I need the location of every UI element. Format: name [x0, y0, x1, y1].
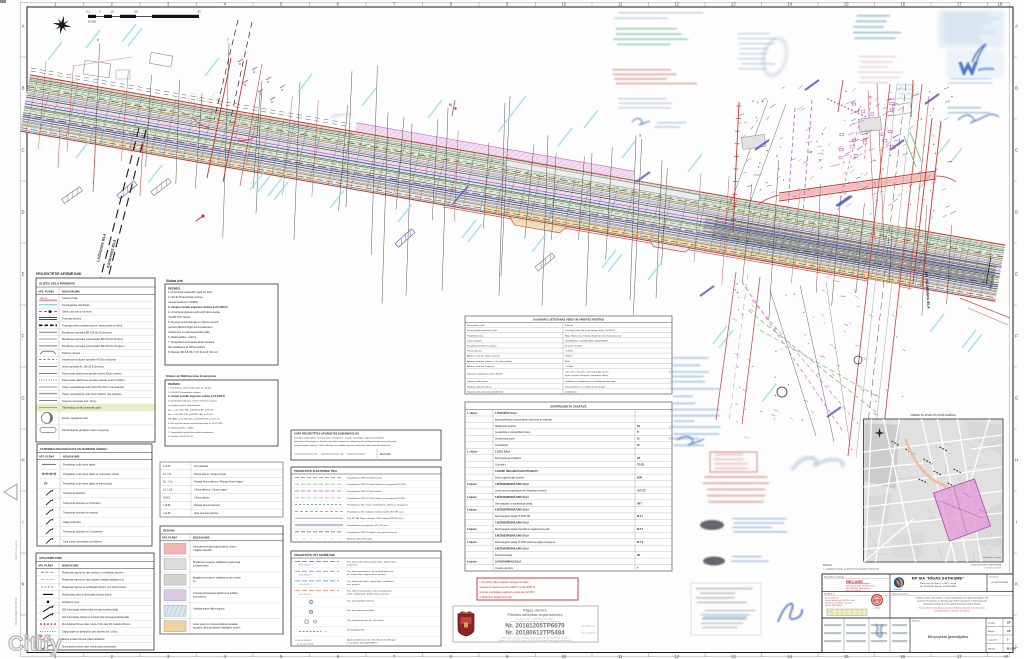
svg-text:04.03.2020 10:18:14: 04.03.2020 10:18:14	[14, 597, 18, 625]
svg-text:"GLIAB" RTK metode.: "GLIAB" RTK metode.	[168, 316, 191, 319]
svg-text:Gājēju barjera ar aizsardzību: Gājēju barjera ar aizsardzību pret kāpnē…	[62, 631, 118, 634]
svg-text:Būvniecības veids: Būvniecības veids	[467, 324, 486, 327]
svg-text:F: F	[22, 334, 25, 339]
svg-text:m): m)	[193, 581, 196, 583]
svg-text:Atbalstiena zona: Atbalstiena zona	[62, 601, 80, 604]
svg-text:14: 14	[787, 1, 792, 6]
svg-text:3.DARBU ORGANIZĀCIJAS PROJEKTS: 3.DARBU ORGANIZĀCIJAS PROJEKTS	[495, 470, 538, 473]
svg-text:Pārejas līknes sākums / Pāreja: Pārejas līknes sākums / Pārejas līknes b…	[194, 481, 243, 484]
svg-text:01000620027, 01000810005, 0100: 01000620027, 01000810005, 01000610099	[565, 340, 608, 342]
svg-text:A: A	[1015, 24, 1018, 29]
svg-text:K: K	[1015, 582, 1018, 587]
svg-text:Gājēju luksofors: Gājēju luksofors	[63, 521, 82, 524]
svg-text:OBJEKTA IZVIETOJUMA SHĒMA: OBJEKTA IZVIETOJUMA SHĒMA	[971, 564, 1002, 567]
svg-text:SEGUMI: SEGUMI	[163, 529, 175, 533]
svg-text:Līknes sākums / Līknes beigas: Līknes sākums / Līknes beigas	[194, 489, 227, 492]
svg-text:6.sējums: 6.sējums	[467, 529, 478, 531]
svg-text:Būvprojektēšanai nepieciešamie: Būvprojektēšanai nepieciešamie dokumenti…	[495, 418, 552, 421]
svg-text:4.sējums: 4.sējums	[467, 496, 478, 499]
svg-text:B: B	[1015, 86, 1018, 91]
svg-text:Pietuvnotas platformas apmales: Pietuvnotas platformas apmales pārejas p…	[62, 378, 125, 382]
svg-text:16: 16	[900, 1, 905, 6]
svg-text:Projektētās ielas: Projektētās ielas	[467, 334, 484, 337]
svg-text:12: 12	[674, 1, 679, 6]
svg-text:(ieskaitot krustojumu) zemes g: (ieskaitot krustojumu) zemes gabals tram…	[923, 603, 981, 606]
svg-text:Kontūrgabala robežlīnija: Kontūrgabala robežlīnija	[62, 303, 90, 307]
svg-text:NOSAUKUMS: NOSAUKUMS	[62, 564, 79, 567]
svg-text:Seguma veids ietvām: Seguma veids ietvām	[467, 380, 488, 383]
svg-text:0.1: 0.1	[86, 10, 91, 14]
svg-text:M: M	[449, 103, 452, 107]
svg-text:Kleistu iela 28, Rīga, LV-1067: Kleistu iela 28, Rīga, LV-1067, Latvija	[920, 582, 957, 585]
svg-text:Betona portāla izbūvēta (zāles: Betona portāla izbūvēta (zāles) atbalsti…	[62, 638, 105, 641]
svg-text:Elektrisko tīklu demontāža: Elektrisko tīklu demontāža	[347, 538, 373, 541]
svg-text:1. Uzmērīšana veikta 2018. gad: 1. Uzmērīšana veikta 2018. gada 10. okto…	[168, 386, 212, 389]
svg-text:C: C	[1015, 148, 1018, 153]
svg-text:×: ×	[325, 629, 327, 633]
svg-text:AVS: AVS	[874, 598, 881, 602]
svg-text:Sertifikāts nr.: Sertifikāts nr.	[824, 593, 835, 596]
svg-text:3. Latvijas normālo augstumu s: 3. Latvijas normālo augstumu sistēma (LA…	[168, 395, 225, 398]
svg-text:K: K	[22, 582, 25, 587]
svg-text:ter., ārējais diam., drīguma k: ter., ārējais diam., drīguma klase, garu…	[347, 573, 386, 576]
svg-text:Aitnanšouma olīpāte apmales IN: Aitnanšouma olīpāte apmales IN 50cm (bet…	[62, 358, 116, 362]
svg-text:Projektējamas RPK 97 kabēlis,: Projektējamas RPK 97 kabēlis, aizsargcan…	[347, 531, 397, 534]
svg-text:Elektroapgāde (ārējā) ST RPR t: Elektroapgāde (ārējā) ST RPR tīkli	[495, 515, 531, 518]
svg-text:Reģ.Nr. 4555-R3555: Reģ.Nr. 4555-R3555	[825, 604, 842, 607]
svg-text:ELT-2: ELT-2	[637, 529, 644, 531]
svg-text:I: I	[22, 520, 23, 525]
svg-text:F: F	[1015, 334, 1018, 339]
svg-text:A3: A3	[1004, 655, 1008, 659]
svg-text:Agrāk projektēti uzsk. (km. Ø4: Agrāk projektēti uzsk. (km. Ø4., lēmumi …	[347, 639, 396, 642]
svg-text:LV6 4B37C007/948: LV6 4B37C007/948	[985, 567, 1001, 569]
svg-text:KOPĀ PROJEKTĒTĀS APVIENOTĀS KO: KOPĀ PROJEKTĒTĀS APVIENOTĀS KOMUNIKĀCIJA…	[294, 433, 359, 436]
svg-text:C: C	[21, 148, 24, 153]
svg-text:DOP: DOP	[637, 477, 642, 479]
svg-text:Slokas un Mārtiņa ielas krusto: Slokas un Mārtiņa ielas krustojums	[166, 374, 217, 378]
svg-text:Ietves apmales AL 100.20.8 (be: Ietves apmales AL 100.20.8 (betona)	[62, 365, 104, 369]
svg-text:10.EKONOMIKAS DAĻA: 10.EKONOMIKAS DAĻA	[495, 560, 521, 563]
svg-text:Proj. kanalizācijas akas (m.,: Proj. kanalizācijas akas (m., aku centrs…	[347, 619, 384, 622]
svg-text:3. Latvijas normālo augstumu s: 3. Latvijas normālo augstumu sistēma (LA…	[168, 306, 228, 309]
svg-text:d110 PE-21.3: d110 PE-21.3	[299, 574, 312, 576]
svg-text:ELT-1: ELT-1	[637, 516, 644, 518]
svg-text:Pielaicinātas zāles ar demontā: Pielaicinātas zāles ar demontāžā kolonna…	[62, 594, 112, 597]
svg-text:Skaidrojošs apraksts: Skaidrojošs apraksts	[495, 425, 517, 428]
svg-text:zvērests: zvērests	[874, 607, 881, 610]
svg-text:Apbūves laukums (zāliens, t.sk: Apbūves laukums (zāliens, t.sk. celiņu p…	[467, 360, 512, 363]
svg-text:Demontāžas izbūves zāles novid: Demontāžas izbūves zāles novidu kāpņu pā…	[62, 645, 116, 648]
svg-text:Projektējamas RPK 97 10kV kab: Projektējamas RPK 97 10kV kabelis	[347, 490, 381, 493]
svg-text:mēroga koeficients 0.999805.: mēroga koeficients 0.999805.	[168, 301, 199, 304]
svg-text:Proj. ugunsdzēsības hidrants: Proj. ugunsdzēsības hidrants	[347, 599, 374, 602]
svg-text:Rīga, Slokas iela, Krišjāņa Va: Rīga, Slokas iela, Krišjāņa Valdemāra ie…	[565, 334, 622, 337]
svg-text:Sarkanā līnija: Sarkanā līnija	[62, 296, 78, 300]
svg-text:Projektētas ceļa zīmes balsts: Projektētas ceļa zīmes balsts ar konstru…	[63, 483, 113, 486]
svg-text:13: 13	[731, 1, 736, 6]
svg-text:B: B	[22, 86, 25, 91]
svg-text:17: 17	[957, 654, 962, 659]
svg-text:ĢP: ĢP	[637, 458, 641, 460]
svg-text:I: I	[1016, 520, 1017, 525]
svg-text:Projektējamas RPK 97 10kV kab: Projektējamas RPK 97 10kV kabelis ar aiz…	[347, 497, 405, 500]
svg-text:13: 13	[731, 654, 736, 659]
svg-text:A: A	[22, 24, 25, 29]
svg-text:Sliežu ceļu ass un numurs: Sliežu ceļu ass un numurs	[62, 310, 92, 314]
svg-text:ĢP: ĢP	[1007, 622, 1011, 625]
svg-text:LVL/4DP/2018/48: LVL/4DP/2018/48	[991, 582, 1009, 584]
svg-text:LED informācijas displejs (tik: LED informācijas displejs (tikai tramvaj…	[62, 608, 118, 611]
svg-text:tramvaja projekta krāsiena. Tī: tramvaja projekta krāsiena. Tīklinis. Mē…	[294, 444, 391, 447]
svg-text:SATIKSMES ORGANIZĀCIJAS UN TEH: SATIKSMES ORGANIZĀCIJAS UN TEHNISKIE LĪD…	[40, 447, 108, 451]
svg-text:4.INŽENIERRISINĀJUMU DAĻA: 4.INŽENIERRISINĀJUMU DAĻA	[495, 483, 529, 486]
svg-text:ŪKT: ŪKT	[637, 502, 642, 505]
svg-text:Ģeotehniskā izpēte: Ģeotehniskā izpēte	[495, 438, 515, 441]
svg-text:5.INŽENIERRISINĀJUMU DAĻA: 5.INŽENIERRISINĀJUMU DAĻA	[495, 496, 529, 499]
svg-text:10: 10	[561, 654, 566, 659]
svg-text:LED informācijas displejs ar t: LED informācijas displejs ar tornado (ti…	[62, 616, 129, 619]
svg-text:Elektroapgāde (ārējā) Atsevišķ: Elektroapgāde (ārējā) Atsevišķi un apgai…	[495, 528, 550, 531]
svg-text:85m²: 85m²	[565, 360, 570, 363]
svg-text:Nr. 20180612TP5484: Nr. 20180612TP5484	[505, 630, 565, 637]
svg-text:L+0.00: L+0.00	[163, 465, 171, 468]
svg-text:14: 14	[787, 654, 792, 659]
svg-text:AM. klasifikatora W. 06/11 pra: AM. klasifikatora W. 06/11 prasībām.	[168, 346, 206, 349]
svg-text:RP SIA "RĪGAS SATIKSME": RP SIA "RĪGAS SATIKSME"	[912, 576, 964, 581]
svg-text:2.CEĻU DAĻA: 2.CEĻU DAĻA	[495, 451, 511, 454]
svg-text:Būvprojekta ģenerālplāns: Būvprojekta ģenerālplāns	[495, 457, 522, 460]
svg-text:Nr. 20181205TP6679: Nr. 20181205TP6679	[505, 623, 565, 630]
svg-text:M 500: M 500	[88, 20, 97, 24]
svg-text:15: 15	[844, 1, 849, 6]
svg-text:Projektētās brauktuves ātrums: Projektētās brauktuves ātrums	[467, 345, 497, 348]
svg-text:Būvkonstrukcijas: Būvkonstrukcijas	[495, 554, 513, 557]
svg-text:10.0k 42.31/40.2: 10.0k 42.31/40.2	[295, 640, 312, 642]
svg-text:APZ. PLĀNĀ: APZ. PLĀNĀ	[39, 455, 54, 458]
svg-text:Reģ. Nr. LV40003-: Reģ. Nr. LV40003-	[846, 589, 862, 592]
svg-text:Dat. 04.02 iesn: Dat. 04.02 iesn	[581, 625, 594, 628]
svg-text:Pasūtījuma: Pasūtījuma	[989, 575, 999, 578]
svg-text:5.sējums: 5.sējums	[467, 510, 478, 512]
svg-text:G: G	[21, 396, 24, 401]
svg-text:d110 PE-21.3: d110 PE-21.3	[299, 584, 312, 586]
svg-text:Proj. lietus kanalizācija ar /: Proj. lietus kanalizācija ar / bez aizsa…	[347, 570, 394, 573]
svg-text:Apbūves laukums (kopējais): Apbūves laukums (kopējais)	[467, 365, 495, 368]
svg-text:Piezīme:: Piezīme:	[823, 564, 833, 567]
svg-text:Rokturu rampas: Rokturu rampas	[62, 351, 81, 355]
svg-text:Proj. siltūves kanalizācija ar: Proj. siltūves kanalizācija ar / bez aiz…	[347, 590, 392, 593]
svg-text:1. sējums: 1. sējums	[467, 413, 478, 415]
svg-text:Bruģakmens segums- asfaltbeton: Bruģakmens segums- asfaltbetona (pāra se…	[193, 561, 241, 564]
svg-text:Pilsētas attīstības departamen: Pilsētas attīstības departaments	[508, 613, 563, 617]
svg-text:7368m²: 7368m²	[565, 355, 573, 358]
svg-text:7.INŽENIERRISINĀJUMU DAĻA: 7.INŽENIERRISINĀJUMU DAĻA	[495, 522, 529, 525]
svg-text:Slokas iela: Slokas iela	[166, 279, 183, 283]
svg-text:40: 40	[197, 10, 201, 14]
svg-text:Tramvaja sliežu pārejas posms-: Tramvaja sliežu pārejas posms- saremontē…	[62, 323, 122, 327]
svg-text:8. Pārskats: BK-5.8; BK-7.0.8;: 8. Pārskats: BK-5.8; BK-7.0.8; PL11.10; …	[168, 351, 218, 354]
svg-text:Elektroapgāde (ārējā) ST RPR e: Elektroapgāde (ārējā) ST RPR elektroener…	[495, 541, 556, 544]
svg-text:Projektējamas RPK 97 0-4kV ka: Projektējamas RPK 97 0-4kV kabelis	[347, 476, 382, 479]
svg-text:M 1:500: M 1:500	[1007, 648, 1016, 651]
svg-text:posmā no krustojuma ar Jūrmala: posmā no krustojuma ar Jūrmalas gatvi lī…	[917, 599, 987, 602]
svg-text:Elektrotīkli: Elektrotīkli	[380, 453, 391, 456]
svg-text:15: 15	[844, 654, 849, 659]
svg-text:san.lin.: san.lin.	[40, 297, 48, 300]
svg-text:E: E	[1015, 272, 1018, 277]
svg-text:PIEZĪMES:: PIEZĪMES:	[168, 383, 181, 386]
svg-text:BK: BK	[637, 555, 641, 557]
svg-text:s hontehniskai): s hontehniskai)	[193, 565, 209, 568]
svg-text:N.DK3: N.DK3	[163, 496, 171, 499]
svg-text:Seguma veids pieturvietu platf: Seguma veids pieturvietu platformām	[467, 390, 503, 393]
svg-text:Proj. RP SIA "Rīgas satiksme": Proj. RP SIA "Rīgas satiksme" 0-4kV kabe…	[347, 517, 404, 520]
svg-text:Rīgas domes: Rīgas domes	[523, 609, 547, 613]
svg-text:13. / 16.: 13. / 16.	[163, 473, 172, 476]
svg-text:Ceļa darbi: Ceļa darbi	[495, 464, 506, 467]
svg-text:Projektētas ceļa zīmes balsts: Projektētas ceļa zīmes balsts	[63, 463, 96, 466]
svg-text:tālr. 67020000, Reģ.Nr. 400036: tālr. 67020000, Reģ.Nr. 40003619950	[920, 585, 957, 588]
svg-text:PROJEKTĒTIE ŪKT APZĪMĒJUMI: PROJEKTĒTIE ŪKT APZĪMĒJUMI	[294, 553, 335, 557]
svg-text:Seguma veids brauktuvei: Seguma veids brauktuvei	[467, 385, 492, 388]
svg-text:4. Uzmērīšanā iekļautas LatPos: 4. Uzmērīšanā iekļautas LatPos GP bāzes …	[168, 311, 221, 314]
svg-text:Mērogs bez mēroga: Mērogs bez mēroga	[983, 556, 1002, 559]
svg-text:L+0.38: L+0.38	[163, 512, 171, 515]
svg-text:11: 11	[618, 1, 623, 6]
svg-text:D: D	[1015, 210, 1018, 215]
svg-text:OBJEKTA IZVIETOJUMA SHĒMA: OBJEKTA IZVIETOJUMA SHĒMA	[911, 413, 956, 417]
svg-text:Lapas Nr.: Lapas Nr.	[988, 639, 998, 642]
svg-text:NOSAUKUMS: NOSAUKUMS	[63, 455, 80, 458]
svg-text:Projektējamas RS. strāvas izl: Projektējamas RS. strāvas izlīdzināšanas…	[347, 504, 408, 507]
svg-text:saskaņotā plānus norāsanu krus: saskaņotā plānus norāsanu krustojumā	[934, 610, 971, 613]
svg-text:APGAISMOJUMS: APGAISMOJUMS	[39, 556, 62, 560]
svg-text:NOSAUKUMS: NOSAUKUMS	[62, 289, 80, 293]
svg-text:30 km/h, 50 km/h: 30 km/h, 50 km/h	[565, 346, 583, 348]
svg-text:Bruģakmens segums- asfaltbeton: Bruģakmens segums- asfaltbetona (āxu mai…	[193, 577, 241, 580]
svg-text:Pārbūve: Pārbūve	[565, 324, 574, 327]
svg-text:Demontējamie grupējumi (sarm i: Demontējamie grupējumi (sarm izeguma)	[62, 428, 109, 432]
svg-text:BŪVPROJEKTA SASTĀVS: BŪVPROJEKTA SASTĀVS	[551, 404, 587, 408]
svg-text:Marka: Marka	[988, 630, 995, 633]
svg-text:taisa elementa garums: taisa elementa garums	[194, 512, 219, 515]
svg-text:Proj. lietus kapu būvniecībām: Proj. lietus kapu būvniecībām	[347, 609, 374, 612]
svg-text:betona plāksnes un halbes gran: betona plāksnes un halbes granīta bruģis	[565, 385, 606, 388]
svg-text:7.sējums: 7.sējums	[467, 542, 478, 544]
svg-text:Zemes kadastri: Zemes kadastri	[467, 339, 482, 342]
svg-text:Seguma nomaiņas (mē. ilmiņ): Seguma nomaiņas (mē. ilmiņ)	[62, 399, 96, 403]
svg-text:Pielaicināts izgurms ar zālu n: Pielaicināts izgurms ar zālu novidam un …	[62, 571, 123, 574]
svg-text:8.sējums: 8.sējums	[467, 561, 478, 563]
svg-text:noteikumiem un veikti apsekoša: noteikumiem un veikti apsekošanā dabā.	[168, 331, 210, 334]
svg-text:RECARE: RECARE	[846, 579, 863, 584]
svg-text:Par pikraksta: Par pikraksta	[194, 465, 209, 468]
svg-text:PIEZĪMES:: PIEZĪMES:	[168, 287, 181, 291]
svg-text:Tilpnveidīgo smilšu izmērošā g: Tilpnveidīgo smilšu izmērošā gads	[62, 406, 102, 410]
svg-text:asfaltbetons: asfaltbetons	[565, 390, 578, 393]
svg-text:5. Ielu seguma izbūves marka (: 5. Ielu seguma izbūves marka (kārta dati…	[168, 422, 224, 425]
svg-text:Demontējamie tīkli: Demontējamie tīkli	[347, 629, 365, 632]
svg-text:Rasējums: Rasējums	[912, 620, 920, 623]
svg-text:d110 PE-21.3: d110 PE-21.3	[299, 594, 312, 596]
svg-text:Fotofiksācija: Fotofiksācija	[495, 444, 508, 447]
svg-text:ējumi, seguma krāsojumi, (aizs: ējumi, seguma krāsojumi, (aizsardzes dat…	[565, 374, 609, 377]
svg-text:DL. 1 Vd.: DL. 1 Vd.	[163, 481, 173, 484]
svg-text:7. Topogrāfiskā apzīmēšana atb: 7. Topogrāfiskā apzīmēšana atbilst stand…	[168, 431, 213, 434]
svg-text:un veiktais uzmēra aktualizēša: un veiktais uzmēra aktualizēšana:	[168, 404, 201, 407]
svg-text:18: 18	[998, 1, 1003, 6]
svg-text:APZ. PLĀNĀ: APZ. PLĀNĀ	[38, 289, 54, 293]
svg-text:Plānais garums: Plānais garums	[467, 350, 483, 353]
svg-text:Mērogs: Mērogs	[988, 648, 996, 651]
svg-text:6.INŽENIERRISINĀJUMU DAĻA: 6.INŽENIERRISINĀJUMU DAĻA	[495, 509, 529, 512]
svg-text:9.INŽENIERRISINĀJUMU DAĻA: 9.INŽENIERRISINĀJUMU DAĻA	[495, 548, 529, 551]
svg-text:10: 10	[561, 1, 566, 6]
svg-text:Projektējamas RPK 97 0-4kV ka: Projektējamas RPK 97 0-4kV kabelis ar ai…	[347, 483, 406, 486]
svg-text:3.kārta. Sliežu ceļa pārbūve p: 3.kārta. Sliežu ceļa pārbūve posmā no Mā…	[919, 607, 986, 610]
svg-text:kan - u+zt 5800 DIG; p-5649/14: kan - u+zt 5800 DIG; p-5649/14; AP; m+12…	[168, 413, 213, 416]
svg-text:Pietuvnotas platformas apmale: Pietuvnotas platformas apmale (izsēts 50…	[62, 371, 122, 375]
svg-text:mater., ārējais diam., drīguma: mater., ārējais diam., drīguma klase, ga…	[347, 593, 389, 596]
svg-text:Apbūves laukums (slāņa augsne): Apbūves laukums (slāņa augsne)	[467, 355, 500, 358]
svg-text:SA: SA	[637, 425, 641, 428]
svg-text:12: 12	[674, 654, 679, 659]
svg-text:Brauktuves apmales pazeminātas: Brauktuves apmales pazeminātas BR 100.22…	[62, 337, 123, 341]
svg-text:e, garums): e, garums)	[347, 563, 357, 566]
svg-text:Līknes rādiuss: Līknes rādiuss	[194, 496, 210, 499]
svg-text:Projektējamas RU. kabeļraru va: Projektējamas RU. kabeļraru vadītais kab…	[347, 510, 404, 513]
svg-text:E: E	[22, 272, 25, 277]
svg-text:H: H	[1015, 458, 1018, 463]
svg-text:ĢI: ĢI	[637, 439, 640, 441]
svg-text:Dat. 18.2003 iesn: Dat. 18.2003 iesn	[581, 632, 597, 635]
svg-text:Tramvaja piebraucamā platforma: Tramvaja piebraucamā platforma ar asfalt…	[193, 592, 239, 595]
svg-text:ELT-3: ELT-3	[637, 542, 644, 544]
svg-text:PROJEKTĒTIE APZĪMĒJUMI: PROJEKTĒTIE APZĪMĒJUMI	[36, 272, 81, 276]
svg-text:Ūdensapgāde un kanalizācija (ā: Ūdensapgāde un kanalizācija (ārējā)	[495, 502, 533, 505]
svg-text:pieņemti atbilstoši Rīgas dome: pieņemti atbilstoši Rīgas domes saistoši…	[168, 326, 213, 329]
svg-text:D: D	[21, 210, 24, 215]
svg-text:Tramvaju sliežu ceļu pārbūve -: Tramvaju sliežu ceļu pārbūve - renovēt s…	[916, 596, 989, 599]
svg-text:3.sējums: 3.sējums	[467, 484, 478, 486]
svg-text:augstumu sistēmā epoha 2000.5: augstumu sistēmā epoha 2000.5 (LAS-2000.…	[480, 585, 537, 589]
svg-text:d110 PE-21.3: d110 PE-21.3	[299, 565, 312, 567]
svg-text:Darbu organizācijas projekts: Darbu organizācijas projekts	[495, 476, 525, 479]
svg-text:Proj. kāportvads (mater., ārēj: Proj. kāportvads (mater., ārējais diam.,…	[347, 580, 395, 583]
svg-text:Brauktuves apmales pazeminātas: Brauktuves apmales pazeminātas BR 100.22…	[62, 344, 125, 348]
svg-text:17.2+8 Ø 2.85 Ø: 17.2+8 Ø 2.85 Ø	[297, 643, 314, 645]
svg-text:Uzlabota grants klātas seguma: Uzlabota grants klātas seguma	[193, 608, 225, 611]
svg-text:Transporta luksofors ar 2 virz: Transporta luksofors ar 2 virzieniem	[63, 531, 103, 534]
svg-text:Esošie, izgāžamie koki: Esošie, izgāžamie koki	[62, 416, 88, 420]
svg-text:Pielaicināts izgurms ar zālu n: Pielaicināts izgurms ar zālu novidam, sā…	[62, 579, 125, 582]
svg-text:TI: TI	[637, 432, 639, 434]
svg-text:L+8.84: L+8.84	[163, 504, 171, 507]
svg-text:Būvprojekta ģenerālplāns: Būvprojekta ģenerālplāns	[928, 634, 969, 639]
svg-text:Ūdens novadīšanas vidū tīriem: Ūdens novadīšanas vidū tīriem PG-150 V (…	[62, 385, 124, 389]
svg-text:2. LKS-92 TM koordinātu sistēm: 2. LKS-92 TM koordinātu sistēma,	[168, 296, 204, 299]
svg-text:8. Pārskats: 99-4-16;11;15: 8. Pārskats: 99-4-16;11;15	[168, 435, 194, 438]
svg-text:2+: 2+	[44, 482, 48, 486]
svg-text:APZ. PLĀNĀ: APZ. PLĀNĀ	[162, 537, 177, 540]
svg-text:11: 11	[618, 654, 623, 659]
svg-text:atsaistēs, tiktorīda klātniem: atsaistēs, tiktorīda klātniem izklātajie…	[193, 627, 240, 630]
svg-text:Ceļa zīmju noņemšana uz balsti: Ceļa zīmju noņemšana uz balstiem	[63, 540, 102, 543]
svg-text:lase, garums): lase, garums)	[347, 583, 360, 586]
svg-text:ielā posmā no krustojuma ar Jū: ielā posmā no krustojuma ar Jūrmalas gat…	[294, 440, 397, 443]
svg-text:10: 10	[110, 10, 114, 14]
svg-text:asfaltbetons, bruģakmens un mā: asfaltbetons, bruģakmens un mākslīgi gra…	[565, 380, 617, 383]
svg-text:Tramvaja sliedes: Tramvaja sliedes	[62, 317, 82, 321]
svg-text:realizācija Latvijas teritorij: realizācija Latvijas teritorijā	[480, 595, 513, 599]
svg-text:Eiropas vertikālās augstumu si: Eiropas vertikālās augstumu sistēmas (EV…	[480, 590, 535, 594]
svg-text:17: 17	[957, 1, 962, 6]
svg-text:Objekta nosaukums: Objekta nosaukums	[892, 593, 909, 596]
svg-text:Elektriskā: Elektriskā	[894, 588, 902, 591]
svg-text:PR-TAAL u+4.0 izb6.441; p+50/2: PR-TAAL u+4.0 izb6.441; p+50/2269.528; m…	[168, 417, 220, 420]
svg-text:APZ. PLĀNĀ: APZ. PLĀNĀ	[38, 564, 53, 567]
svg-text:6. Objekta platība - 3.60 ha.: 6. Objekta platība - 3.60 ha.	[168, 336, 197, 339]
svg-text:Projektētas ceļa zīmes balsts: Projektētas ceļa zīmes balsts ar noņemtā…	[63, 473, 119, 476]
svg-text:Ietvē gareņa bruģis seguma ats: Ietvē gareņa bruģis seguma atsūts, krāts…	[193, 546, 237, 549]
svg-text:Demontāžas izbūves zāles novid: Demontāžas izbūves zāles novidu (3.0m ca…	[62, 623, 131, 626]
svg-text:Lietus ūdens kanalizācijas tīk: Lietus ūdens kanalizācijas tīkli. Elektr…	[495, 489, 548, 492]
svg-text:ĢP: ĢP	[1007, 630, 1011, 633]
svg-text:Ģeodēziskā un topogrāfiskā izp: Ģeodēziskā un topogrāfiskā izpēte	[495, 431, 531, 434]
svg-text:Zemes gabalu lietošanas veids: Zemes gabalu lietošanas veids	[467, 329, 498, 332]
svg-text:Ierakstīts no būvprojekta: Tra: Ierakstīts no būvprojekta: Tramvaju slie…	[294, 437, 384, 440]
svg-text:NOSAUKUMS: NOSAUKUMS	[193, 537, 210, 540]
svg-text:G: G	[1015, 396, 1018, 401]
svg-text:6. Objekta platība - 0.36ha: 6. Objekta platība - 0.36ha	[168, 426, 195, 429]
svg-text:! Uzmērītu plānu saistīts Latv: ! Uzmērītu plānu saistīts Latvijas normā…	[480, 580, 530, 584]
svg-text:Ietves segums ar betona plāksn: Ietves segums ar betona plāksnēm apstāka…	[193, 623, 238, 626]
svg-text:1. Uzmērīšana veikta 2018. gad: 1. Uzmērīšana veikta 2018. gada 20. aprī…	[168, 291, 213, 294]
svg-text:Stadija: Stadija	[988, 622, 995, 625]
svg-text:Ūdens novadīšanas vidū tīriem: Ūdens novadīšanas vidū tīriem SANI-K (va…	[62, 392, 122, 396]
svg-text:7. Topogrāfiskā apzīmēšana atb: 7. Topogrāfiskā apzīmēšana atbilst stand…	[168, 341, 215, 344]
svg-text:20: 20	[134, 10, 138, 14]
svg-text:Projektējamier aizsargčaulas (: Projektējamier aizsargčaulas (975 PE cau…	[347, 524, 389, 527]
svg-text:Satiksmes regulēšanas tehn. lī: Satiksmes regulēšanas tehn. līdzekļi	[467, 373, 503, 376]
svg-text:Izmaksu aprēķins: Izmaksu aprēķins	[495, 567, 514, 570]
svg-text:Transporta luksofors ar virzie: Transporta luksofors ar virzieniem	[63, 502, 101, 505]
svg-text:LKT, ĢT: LKT, ĢT	[637, 490, 646, 492]
svg-text:Brauktuves apmales BR 100.30.1: Brauktuves apmales BR 100.30.15 (betona)	[62, 330, 112, 334]
svg-text:Xref: 9.1.0_demo: Xref: 9.1.0_demo	[14, 540, 18, 560]
svg-text:PROJEKTĒTIE ELEKTRISKIE TĪKLI: PROJEKTĒTIE ELEKTRISKIE TĪKLI	[294, 469, 337, 473]
svg-text:Būvprojekta izstrādātājs: Būvprojekta izstrādātājs	[824, 575, 844, 578]
svg-text:1.VISPĀRĒJĀ DAĻA: 1.VISPĀRĒJĀ DAĻA	[495, 412, 517, 415]
svg-text:~7214m²: ~7214m²	[565, 365, 574, 368]
svg-text:4. Uzmērīšanā iekļautas LatPos: 4. Uzmērīšanā iekļautas LatPos GP bāzes …	[168, 400, 218, 403]
svg-text:5. Ielu seguma konstrukcijas u: 5. Ielu seguma konstrukcijas un izbūves …	[168, 321, 219, 324]
svg-text:* - oriģināls iesniegts, ja do: * - oriģināls iesniegts, ja dokuments pa…	[823, 568, 880, 571]
svg-text:Citify: Citify	[8, 632, 62, 656]
svg-text:a cauruļvads. Pand.SIA "NPETO": a cauruļvads. Pand.SIA "NPETO"	[347, 642, 378, 645]
svg-text:gāz - u+zn 7481; TAL; p-5649/1: gāz - u+zn 7481; TAL; p-5649/14; AP; m11…	[168, 409, 214, 412]
svg-text:n digšās materiāls: n digšās materiāls	[193, 549, 212, 552]
svg-text:tona segumu: tona segumu	[193, 596, 207, 599]
svg-text:LS. 1 LB: LS. 1 LB	[163, 489, 173, 492]
svg-text:2. LKS-92 TM koordinātu sistēm: 2. LKS-92 TM koordinātu sistēma.	[168, 391, 201, 394]
svg-text:TS-CD: TS-CD	[637, 465, 644, 467]
svg-text:8.INŽENIERRISINĀJUMU DAĻA: 8.INŽENIERRISINĀJUMU DAĻA	[495, 535, 529, 538]
svg-text:Pielaicināts izgurms ar ventil: Pielaicināts izgurms ar ventilācijas izb…	[62, 586, 126, 589]
svg-text:H: H	[21, 458, 24, 463]
svg-text:2. sējums: 2. sējums	[467, 452, 478, 454]
